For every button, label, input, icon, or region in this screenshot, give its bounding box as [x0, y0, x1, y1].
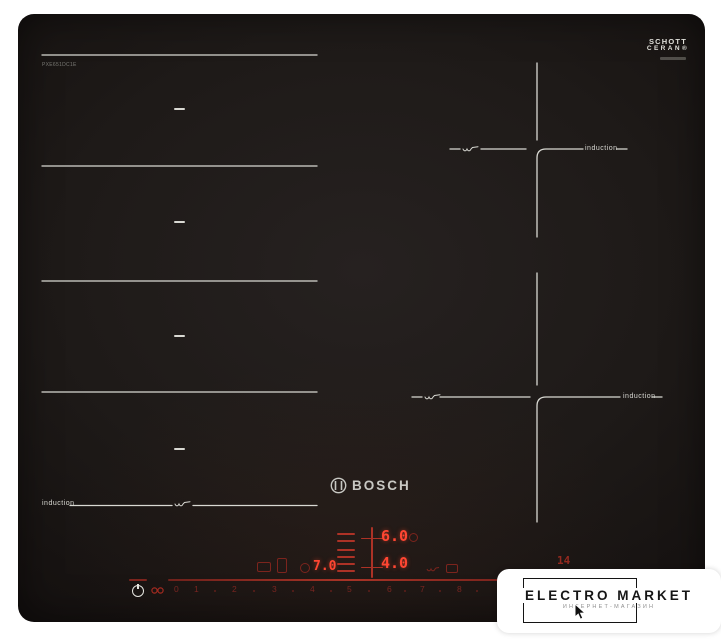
schott-logo-line2: CERAN®: [641, 46, 695, 52]
mouse-cursor-icon: [573, 603, 587, 621]
schott-ceran-logo: SCHOTT CERAN®: [641, 39, 695, 52]
bosch-armature-icon: [330, 477, 347, 494]
flex-segment-bar: [337, 570, 355, 572]
bosch-logo-text: BOSCH: [352, 478, 411, 493]
schott-fineprint: [660, 57, 686, 60]
scale-number: 1: [194, 585, 199, 594]
watermark-badge: ELECTRO MARKET ИНТЕРНЕТ-МАГАЗИН: [497, 569, 721, 633]
scale-dot: [404, 590, 406, 592]
scale-number: 5: [347, 585, 352, 594]
scale-dot: [330, 590, 332, 592]
power-display-left: 7.0: [313, 559, 336, 574]
watermark-title: ELECTRO MARKET: [497, 588, 721, 603]
timer-display: 14: [557, 554, 570, 567]
flex-segment-bar: [337, 563, 355, 565]
scale-number: 8: [457, 585, 462, 594]
pan-symbol-dim-icon: [426, 563, 440, 573]
slider-track-segment: [129, 579, 147, 581]
power-boost-icon: [409, 533, 418, 542]
watermark-subtitle: ИНТЕРНЕТ-МАГАЗИН: [497, 604, 721, 611]
zone-selector-tick: [361, 567, 383, 569]
scale-dot: [253, 590, 255, 592]
pan-detect-icon: [446, 564, 458, 573]
slider-track: [168, 579, 498, 581]
keep-warm-icon: [257, 562, 271, 572]
power-display-top: 6.0: [381, 527, 408, 545]
bosch-logo: BOSCH: [330, 477, 411, 494]
induction-label-bottom-right: induction: [623, 393, 656, 401]
timer-clock-icon: [300, 563, 310, 573]
scale-number: 6: [387, 585, 392, 594]
power-icon: [132, 585, 144, 597]
cooktop-surface: [18, 14, 705, 622]
scale-dot: [476, 590, 478, 592]
zone-function-icon: [151, 585, 164, 595]
flex-segment-bar: [337, 549, 355, 551]
flex-segment-bar: [337, 540, 355, 542]
induction-label-left: induction: [42, 500, 75, 508]
flex-segment-bar: [337, 556, 355, 558]
zone-selector-line: [371, 527, 373, 578]
scale-dot: [292, 590, 294, 592]
zone-selector-tick: [361, 538, 383, 540]
model-number-label: PXE651DC1E: [42, 62, 77, 68]
scale-dot: [368, 590, 370, 592]
pause-function-icon: [277, 558, 287, 573]
scale-number: 0: [174, 585, 179, 594]
induction-label-top-right: induction: [585, 145, 618, 153]
flex-segment-bar: [337, 533, 355, 535]
scale-number: 4: [310, 585, 315, 594]
product-photo: PXE651DC1E induction induction induction…: [0, 0, 721, 640]
scale-number: 7: [420, 585, 425, 594]
scale-number: 2: [232, 585, 237, 594]
scale-dot: [214, 590, 216, 592]
scale-dot: [439, 590, 441, 592]
scale-number: 3: [272, 585, 277, 594]
power-display-bottom: 4.0: [381, 554, 408, 572]
